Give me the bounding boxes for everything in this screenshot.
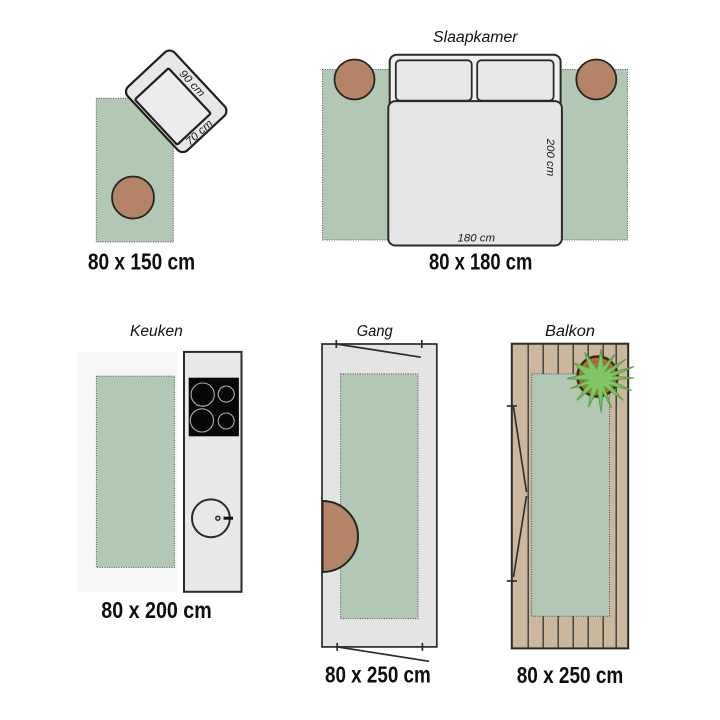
svg-text:Balkon: Balkon <box>545 323 595 340</box>
svg-text:80 x 200 cm: 80 x 200 cm <box>101 597 212 623</box>
svg-text:Slaapkamer: Slaapkamer <box>433 29 518 46</box>
svg-text:80 x 250 cm: 80 x 250 cm <box>517 662 624 688</box>
svg-text:180 cm: 180 cm <box>458 232 496 244</box>
svg-text:80 x 180 cm: 80 x 180 cm <box>429 249 532 275</box>
svg-text:Gang: Gang <box>357 323 393 340</box>
svg-text:Keuken: Keuken <box>130 323 183 340</box>
svg-text:200 cm: 200 cm <box>544 138 556 177</box>
svg-text:80 x 150 cm: 80 x 150 cm <box>88 249 195 275</box>
svg-text:80 x 250 cm: 80 x 250 cm <box>325 662 431 688</box>
